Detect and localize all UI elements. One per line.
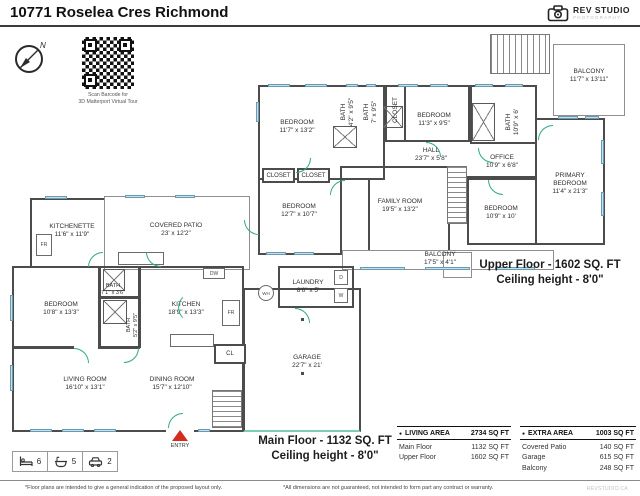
table-row: Covered Patio140 SQ FT	[520, 440, 636, 451]
room-label-garage: GARAGE22'7" x 21'	[292, 354, 322, 370]
qr-code	[82, 37, 134, 89]
table-row: Upper Floor1602 SQ FT	[397, 451, 511, 462]
qr-caption-2: 3D Matterport Virtual Tour	[78, 99, 137, 105]
window	[198, 429, 210, 432]
window	[62, 429, 84, 432]
room-label-living-room: LIVING ROOM16'10" x 13'1"	[63, 376, 106, 392]
room-label-bath: BATH5'2" x 9'5"	[126, 313, 140, 337]
upper-floor-title: Upper Floor - 1602 SQ. FT Ceiling height…	[479, 258, 620, 288]
room-label-closet: CLOSET	[392, 97, 400, 123]
window	[294, 252, 314, 255]
table-row: Garage615 SQ FT	[520, 451, 636, 462]
window	[94, 429, 116, 432]
window	[10, 295, 13, 321]
wall	[467, 176, 537, 178]
bullet-icon: ●	[522, 431, 525, 437]
wall	[12, 346, 74, 349]
wall	[98, 266, 101, 348]
camera-icon	[547, 5, 569, 22]
window	[585, 116, 599, 119]
window	[30, 429, 52, 432]
footer-disclaimer-left: *Floor plans are intended to give a gene…	[25, 485, 222, 491]
counter	[170, 334, 214, 347]
room-label-bedroom: BEDROOM10'8" x 13'3"	[43, 301, 79, 317]
window	[346, 84, 358, 87]
room-label-bedroom: BEDROOM11'7" x 13'2"	[279, 119, 314, 135]
logo-subtext: PHOTOGRAPHY	[573, 16, 630, 21]
garage-post	[301, 372, 304, 375]
window	[305, 84, 327, 87]
qr-caption-1: Scan Barcode for	[88, 92, 128, 98]
table-row: Balcony248 SQ FT	[520, 461, 636, 472]
living-area-header: ●LIVING AREA 2734 SQ FT	[397, 426, 511, 440]
car-icon	[88, 456, 103, 467]
window	[425, 267, 470, 270]
table-row: Main Floor1132 SQ FT	[397, 440, 511, 451]
stairs-main	[212, 390, 242, 428]
stats-box: 6 5 2	[12, 451, 118, 472]
window	[125, 195, 145, 198]
window	[175, 195, 195, 198]
qr-eye	[119, 39, 132, 52]
beds-stat: 6	[13, 452, 48, 471]
window	[256, 102, 259, 122]
window	[505, 84, 523, 87]
entry-arrow	[172, 430, 188, 441]
stairs-interior	[447, 166, 467, 224]
water-heater: WH	[258, 285, 274, 301]
bullet-icon: ●	[399, 431, 402, 437]
window	[475, 84, 493, 87]
shower-stall	[472, 103, 495, 141]
shower-stall	[333, 126, 357, 148]
baths-stat: 5	[48, 452, 83, 471]
door-arc	[478, 148, 493, 163]
window	[366, 84, 376, 87]
room-label-bedroom: BEDROOM10'9" x 10'	[484, 205, 518, 221]
window	[10, 365, 13, 391]
header-divider	[0, 25, 640, 27]
room-label-dining-room: DINING ROOM15'7" x 12'10"	[150, 376, 195, 392]
window	[430, 84, 448, 87]
window	[398, 84, 418, 87]
room-label-balcony: BALCONY11'7" x 13'11"	[570, 68, 608, 84]
window	[558, 116, 578, 119]
logo-text: REV STUDIO	[573, 6, 630, 15]
room-label-balcony: BALCONY17'5" x 4'1"	[424, 251, 456, 267]
footer-divider	[0, 480, 640, 481]
shower-stall	[103, 300, 127, 324]
main-floor-title: Main Floor - 1132 SQ. FT Ceiling height …	[258, 434, 392, 464]
room-label-bedroom: BEDROOM12'7" x 10'7"	[281, 203, 317, 219]
extra-area-table: ●EXTRA AREA 1003 SQ FT Covered Patio140 …	[520, 426, 636, 472]
window	[266, 252, 286, 255]
footer-disclaimer-right: *All dimensions are not guaranteed, not …	[283, 485, 493, 491]
living-area-table: ●LIVING AREA 2734 SQ FT Main Floor1132 S…	[397, 426, 511, 461]
window	[268, 84, 290, 87]
room-label-kitchenette: KITCHENETTE11'6" x 11'9"	[49, 223, 94, 239]
wall	[404, 87, 406, 140]
room-label-bath: BATH7'1" x 3'6"	[101, 283, 125, 297]
cars-stat: 2	[83, 452, 117, 471]
bath-icon	[54, 456, 68, 468]
rev-studio-logo: REV STUDIO PHOTOGRAPHY	[547, 5, 630, 22]
room-label-primary-bedroom: PRIMARY BEDROOM11'4" x 21'3"	[538, 172, 602, 196]
room-label-covered-patio: COVERED PATIO23' x 12'2"	[150, 222, 203, 238]
compass-icon: N	[10, 36, 52, 78]
window	[601, 140, 604, 164]
bed-icon	[19, 456, 33, 467]
room-label-laundry: LAUNDRY8'6" x 5'	[293, 279, 324, 295]
window	[360, 267, 405, 270]
washer-box: W	[334, 288, 348, 303]
dishwasher-box: DW	[203, 268, 225, 279]
extra-area-header: ●EXTRA AREA 1003 SQ FT	[520, 426, 636, 440]
entry-label: ENTRY	[171, 443, 190, 449]
footer-brand: REVSTUDIO.CA	[587, 486, 628, 492]
qr-eye	[84, 39, 97, 52]
window	[45, 196, 67, 199]
stairs-to-balcony	[490, 34, 550, 74]
dryer-box: D	[334, 270, 348, 285]
qr-eye	[84, 74, 97, 87]
page-title: 10771 Roselea Cres Richmond	[10, 4, 228, 21]
door-arc	[426, 142, 441, 157]
svg-text:N: N	[40, 41, 46, 50]
room-label-bath: BATH7' x 9'5"	[363, 101, 379, 124]
room-label-bedroom: BEDROOM11'3" x 9'5"	[417, 112, 451, 128]
closet-box: CLOSET	[262, 168, 295, 183]
room-label-bath: BATH10'9" x 6'	[505, 109, 521, 135]
closet-box: CL	[214, 344, 246, 364]
room-label-bath: BATH4'2" x 9'5"	[340, 98, 356, 126]
room-label-family-room: FAMILY ROOM19'5" x 13'2"	[378, 198, 423, 214]
fridge-box: FR	[222, 300, 240, 326]
